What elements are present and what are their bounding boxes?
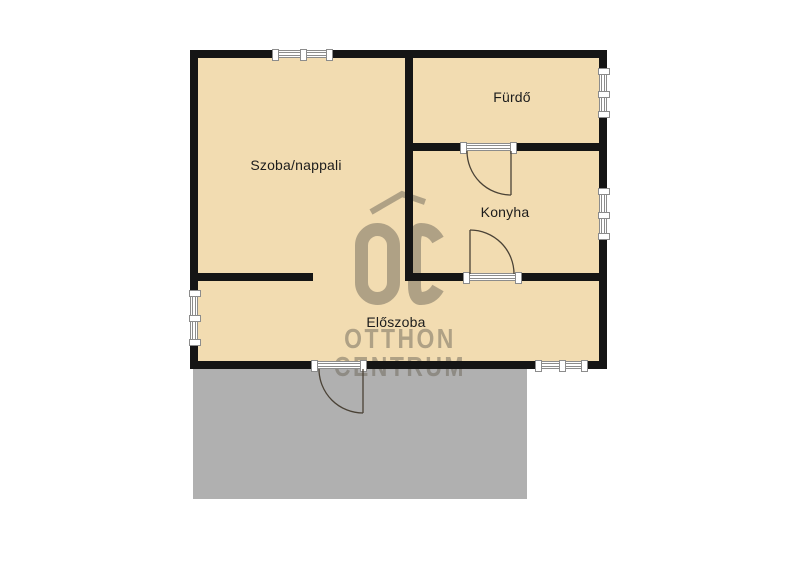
window-post xyxy=(300,49,307,61)
window-post xyxy=(272,49,279,61)
window-post xyxy=(189,290,201,297)
room-label-eloszoba: Előszoba xyxy=(366,314,425,330)
otthon-centrum-logo-icon xyxy=(350,190,450,310)
window-bottom-icon xyxy=(535,361,588,369)
door-swing-konyha-icon xyxy=(462,225,524,281)
window-post xyxy=(559,360,566,372)
room-label-konyha: Konyha xyxy=(481,204,530,220)
wall-outer-top xyxy=(190,50,607,58)
window-furdo-right-icon xyxy=(599,68,607,118)
floorplan: OTTHON CENTRUM xyxy=(0,0,800,565)
window-post xyxy=(598,212,610,219)
window-post xyxy=(598,111,610,118)
room-label-furdo: Fürdő xyxy=(493,89,531,105)
window-post xyxy=(598,188,610,195)
door-swing-entry-icon xyxy=(310,361,372,421)
window-post xyxy=(581,360,588,372)
window-top-icon xyxy=(272,50,333,58)
wall-szoba-eloszoba xyxy=(191,273,313,281)
wall-divider-vertical xyxy=(405,50,413,281)
wall-konyha-eloszoba-right xyxy=(522,273,607,281)
window-post xyxy=(535,360,542,372)
room-label-szoba-nappali: Szoba/nappali xyxy=(250,157,341,173)
wall-furdo-konyha-left xyxy=(405,143,460,151)
window-post xyxy=(189,315,201,322)
window-post xyxy=(598,68,610,75)
window-post xyxy=(598,91,610,98)
watermark: OTTHON CENTRUM xyxy=(0,0,800,565)
window-post xyxy=(189,339,201,346)
wall-furdo-konyha-right xyxy=(517,143,607,151)
window-post xyxy=(598,233,610,240)
window-post xyxy=(326,49,333,61)
door-swing-furdo-icon xyxy=(459,143,521,201)
wall-konyha-eloszoba-left xyxy=(405,273,463,281)
window-eloszoba-left-icon xyxy=(190,290,198,346)
window-konyha-right-icon xyxy=(599,188,607,240)
